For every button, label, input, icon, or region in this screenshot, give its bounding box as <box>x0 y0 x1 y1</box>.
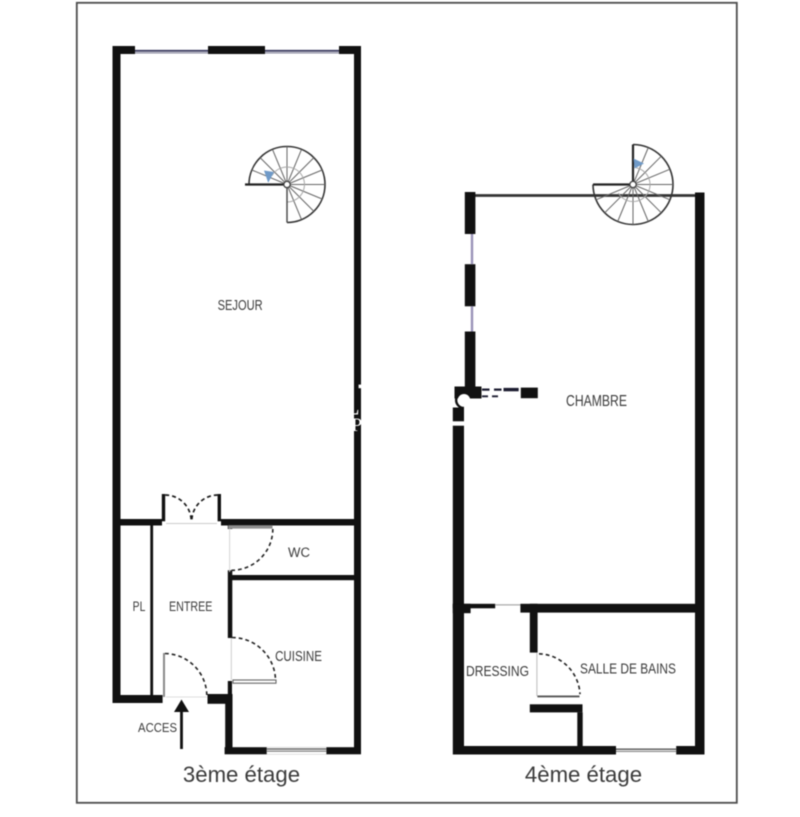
svg-text:P: P <box>352 415 363 436</box>
svg-text:4ème étage: 4ème étage <box>525 762 642 787</box>
svg-text:WC: WC <box>288 545 310 560</box>
svg-text:ENTREE: ENTREE <box>169 599 212 615</box>
svg-text:DRESSING: DRESSING <box>466 663 529 679</box>
svg-text:SALLE DE BAINS: SALLE DE BAINS <box>580 660 676 677</box>
svg-text:CHAMBRE: CHAMBRE <box>566 392 627 410</box>
svg-text:CUISINE: CUISINE <box>275 648 322 665</box>
svg-text:ACCES: ACCES <box>138 720 177 735</box>
svg-text:PL: PL <box>133 599 146 615</box>
svg-text:3ème étage: 3ème étage <box>183 762 300 787</box>
svg-text:SEJOUR: SEJOUR <box>218 296 263 313</box>
